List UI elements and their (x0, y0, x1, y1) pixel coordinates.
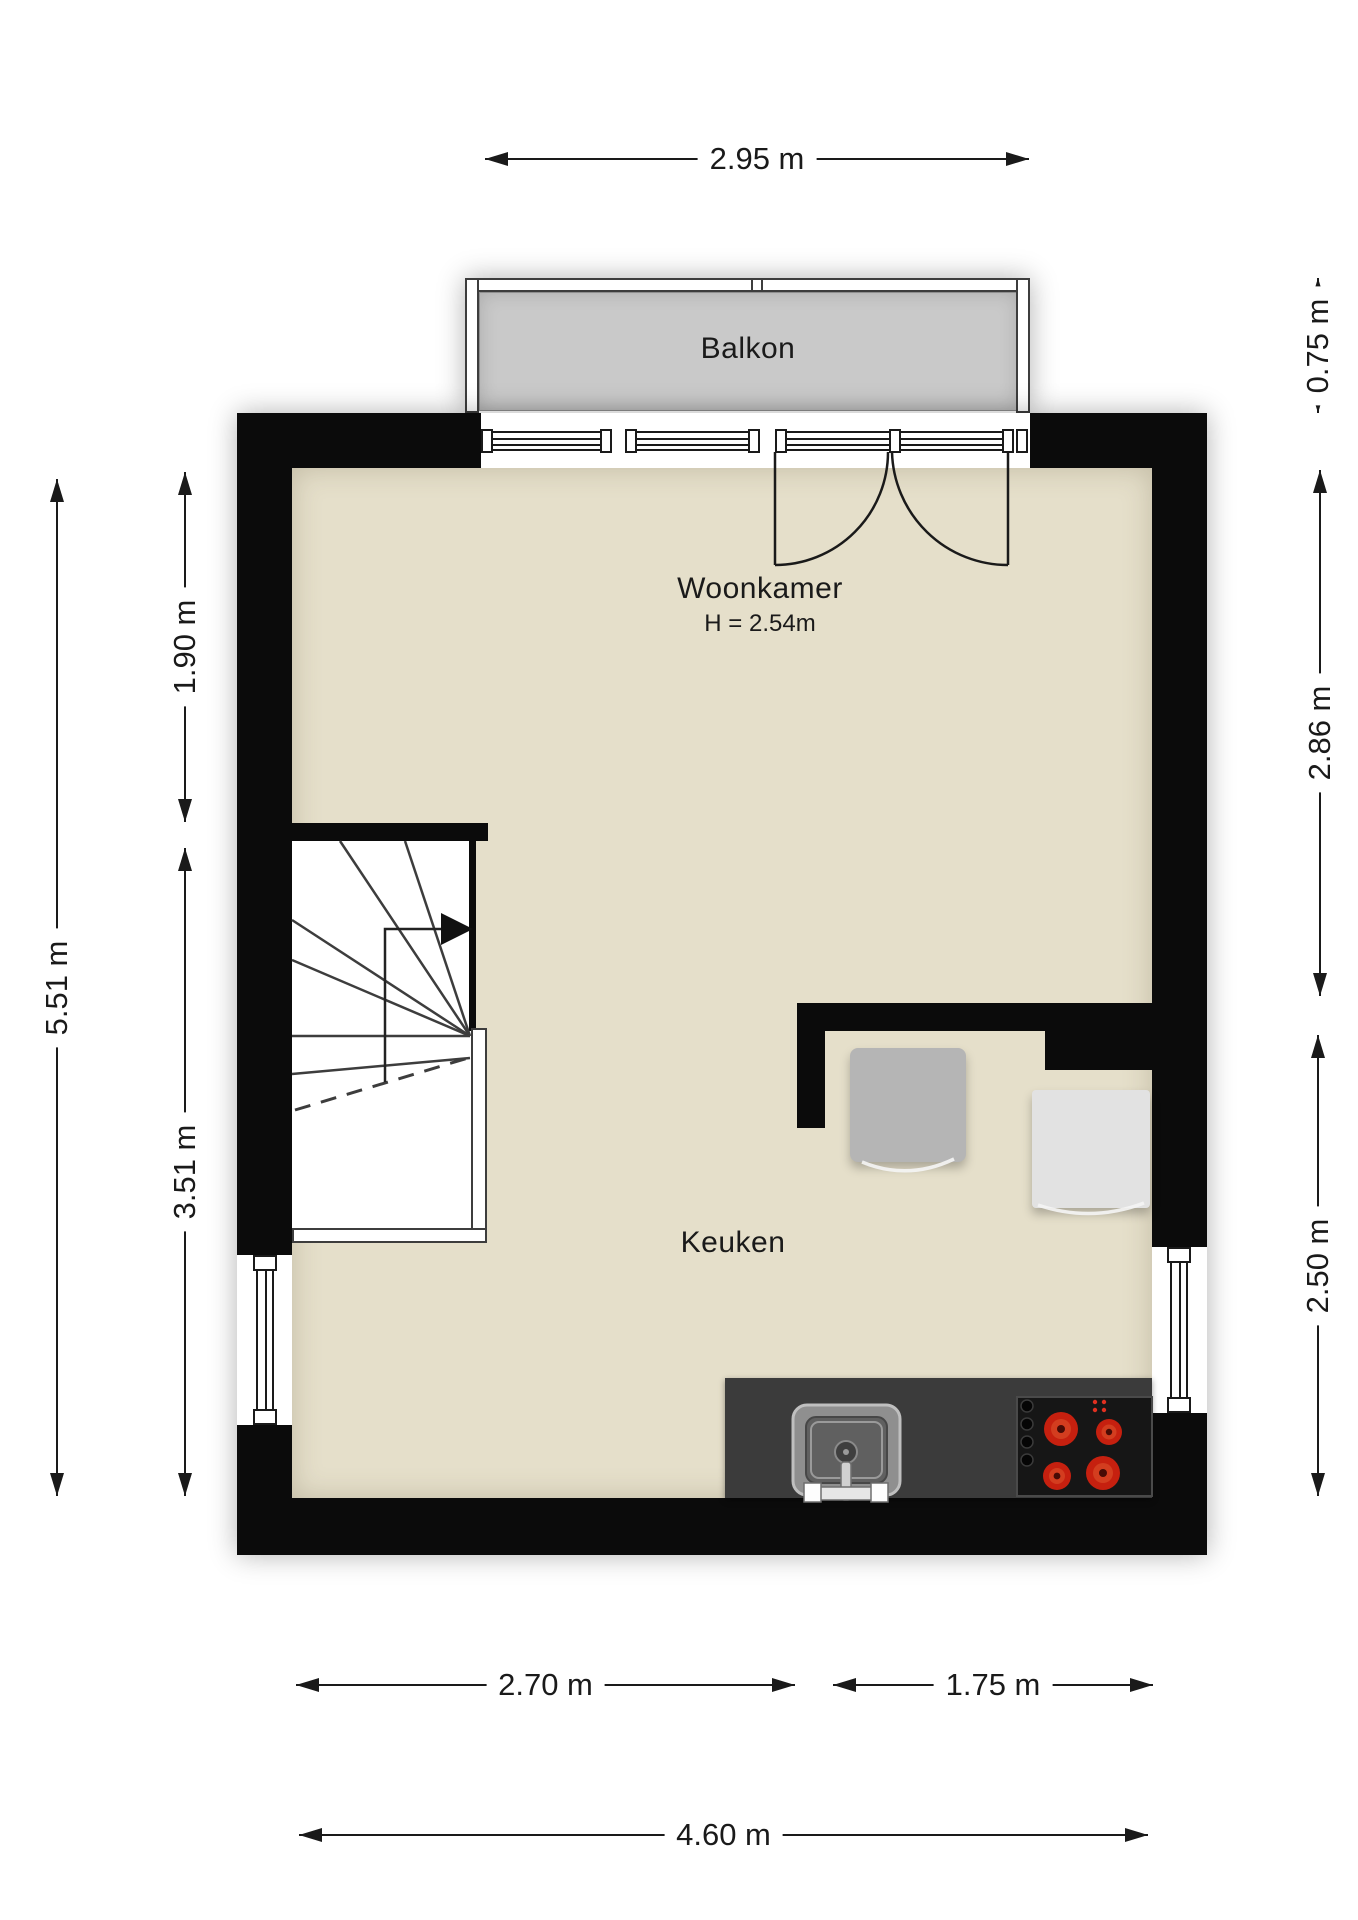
room-label-balkon: Balkon (701, 332, 796, 366)
window-top-2 (637, 431, 748, 451)
wall-kitchen-partition-block (1045, 1003, 1152, 1070)
window-frame-cap (600, 429, 612, 453)
window-left-cap-top (253, 1255, 277, 1271)
stairs (292, 841, 473, 1228)
stairs-right-wall (471, 1028, 487, 1243)
balcony-railing-left (465, 278, 479, 413)
window-top-1 (493, 431, 600, 451)
kitchen-counter (725, 1378, 1152, 1498)
room-label-woonkamer: Woonkamer (677, 572, 843, 606)
floor-plan: Balkon (0, 0, 1358, 1920)
window-frame-cap (748, 429, 760, 453)
ceiling-height-label: H = 2.54m (704, 610, 815, 638)
room-label-keuken: Keuken (681, 1226, 786, 1260)
window-right-cap-top (1167, 1247, 1191, 1263)
door-jamb-left (775, 429, 787, 453)
wall-stairs-stub (292, 823, 488, 841)
window-right-cap-bottom (1167, 1397, 1191, 1413)
chair (850, 1048, 966, 1162)
window-left-glazing (256, 1270, 274, 1410)
window-frame-cap (625, 429, 637, 453)
wall-right-upper (1152, 413, 1207, 1247)
wall-bottom (237, 1498, 1207, 1555)
balcony-railing-right (1016, 278, 1030, 413)
wall-kitchen-partition-vertical (797, 1003, 825, 1128)
cabinet (1032, 1090, 1150, 1208)
window-frame-cap (1016, 429, 1028, 453)
stairs-bottom-wall (292, 1228, 487, 1243)
window-right-glazing (1170, 1262, 1188, 1398)
stairs-side-wall (469, 841, 476, 1031)
wall-left-upper (237, 413, 292, 1255)
door-jamb-right (1002, 429, 1014, 453)
window-frame-cap (481, 429, 493, 453)
door-center-post (889, 429, 901, 453)
window-left-cap-bottom (253, 1409, 277, 1425)
balcony-railing-divider (751, 278, 763, 292)
balcony-railing-top (465, 278, 1030, 292)
